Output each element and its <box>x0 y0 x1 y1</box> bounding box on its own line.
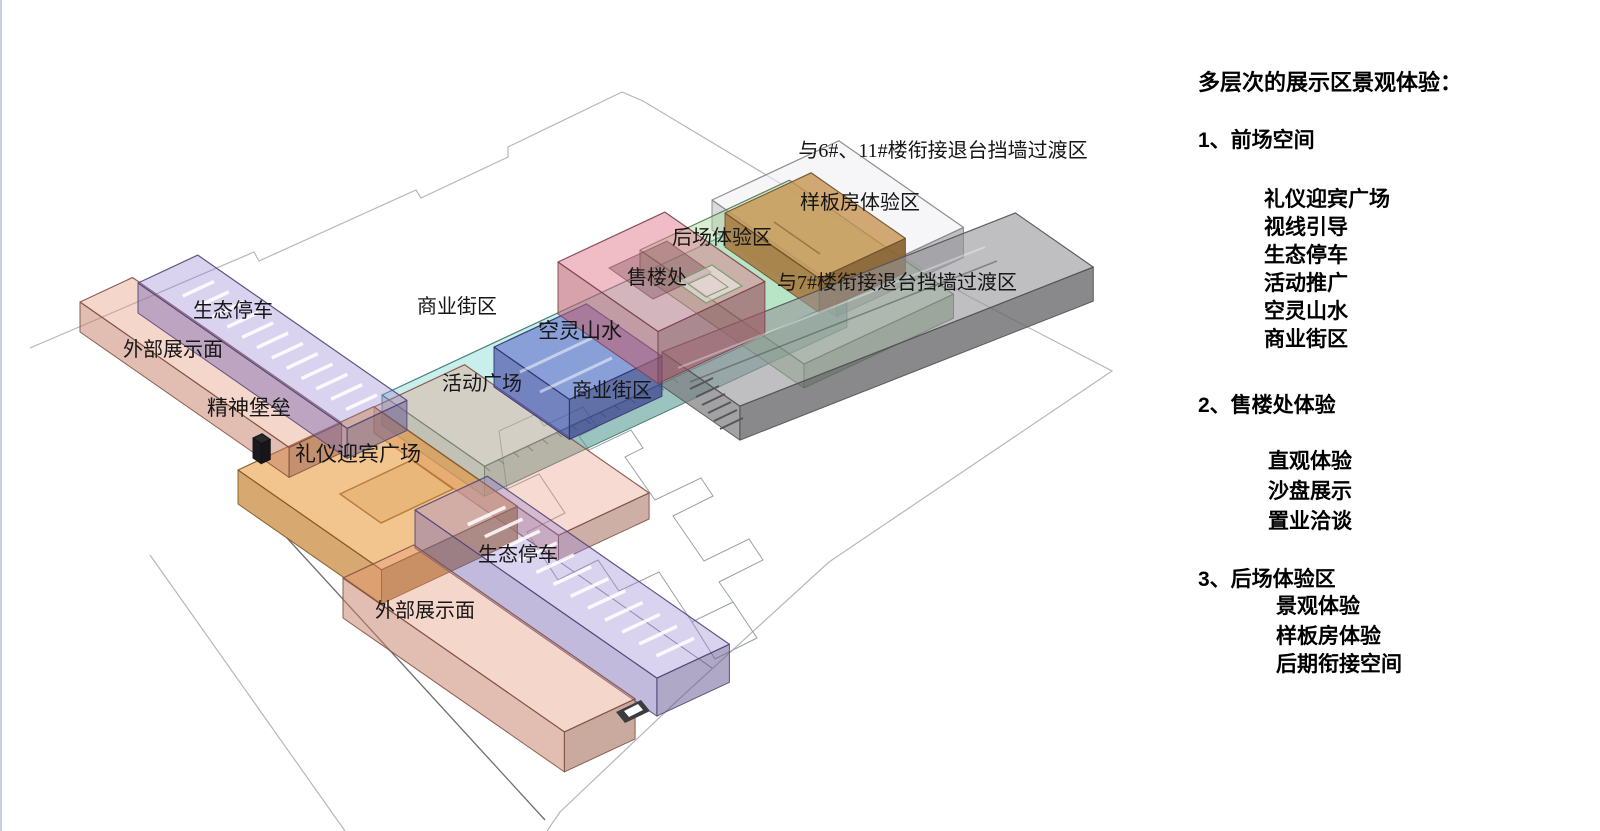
site-plan-diagram: 与6#、11#楼衔接退台挡墙过渡区样板房体验区后场体验区售楼处与7#楼衔接退台挡… <box>0 0 1600 831</box>
label-parking-upper: 生态停车 <box>193 299 273 322</box>
zones-layer <box>80 141 1093 772</box>
site-boundary-left <box>150 555 345 831</box>
label-spirit-totem: 精神堡垒 <box>207 396 291 420</box>
label-commercial-lower: 商业街区 <box>572 379 652 402</box>
label-transition-6-11: 与6#、11#楼衔接退台挡墙过渡区 <box>798 139 1087 162</box>
label-model-house: 样板房体验区 <box>800 191 920 214</box>
label-ethereal: 空灵山水 <box>538 319 622 343</box>
label-welcome-plaza: 礼仪迎宾广场 <box>295 442 421 466</box>
label-transition-7: 与7#楼衔接退台挡墙过渡区 <box>777 271 1017 294</box>
label-parking-lower: 生态停车 <box>478 543 558 566</box>
label-sales-office: 售楼处 <box>627 266 687 289</box>
label-commercial-upper: 商业街区 <box>417 295 497 318</box>
label-activity-plaza: 活动广场 <box>442 372 522 395</box>
zone-spirit-totem <box>253 434 270 464</box>
label-backyard: 后场体验区 <box>672 226 772 249</box>
label-display-upper: 外部展示面 <box>123 338 223 361</box>
label-display-lower: 外部展示面 <box>375 599 475 622</box>
